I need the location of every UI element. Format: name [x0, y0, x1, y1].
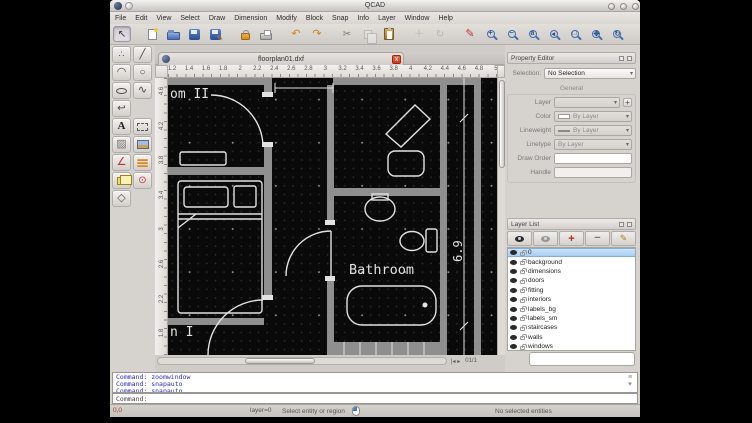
move-button: ＋	[410, 26, 428, 42]
select-pointer-icon: ↖	[118, 29, 126, 40]
snap-tool-button[interactable]: ⊙	[133, 172, 152, 189]
circle-tool-button[interactable]: ○	[133, 64, 152, 81]
command-history-line: Command: snapauto	[116, 381, 623, 388]
move-icon: ＋	[414, 29, 424, 40]
close-panel-icon[interactable]	[627, 222, 632, 227]
command-history[interactable]: Command: zoomwindowCommand: snapautoComm…	[112, 372, 638, 393]
coordinate-display: 0,0	[113, 407, 122, 414]
zoom-auto-icon: a	[529, 30, 537, 38]
menu-file[interactable]: File	[115, 15, 126, 22]
menu-snap[interactable]: Snap	[332, 15, 348, 22]
layer-filter-input[interactable]	[529, 352, 635, 366]
menu-edit[interactable]: Edit	[135, 15, 147, 22]
layer-visible-eye-icon[interactable]	[510, 278, 517, 283]
ellipse-tool-button[interactable]	[112, 82, 131, 99]
zoom-window-button[interactable]: □	[566, 26, 584, 42]
vruler-tick-label: 1.8	[159, 327, 165, 339]
zoom-pan-button[interactable]: ✥	[587, 26, 605, 42]
hruler-tick-label: 4.4	[441, 66, 449, 72]
block-tool-icon	[117, 177, 127, 185]
layer-name: staircases	[528, 324, 557, 331]
polyline-tool-icon: ↩	[117, 103, 125, 114]
color-combobox[interactable]: By Layer	[554, 111, 632, 122]
line-tool-icon: ╱	[139, 49, 145, 60]
solid-tool-button[interactable]: ◇	[112, 190, 131, 207]
print-icon	[260, 33, 272, 40]
add-layer-button[interactable]: +	[559, 231, 584, 246]
print-button[interactable]	[257, 26, 275, 42]
layer-name: walls	[528, 334, 542, 341]
draw-order-input[interactable]	[554, 153, 632, 164]
hide-all-layers-icon	[541, 236, 550, 242]
right-dock: Property Editor Selection: No Selection …	[505, 45, 638, 372]
zoom-refresh-button[interactable]: ↻	[608, 26, 626, 42]
layer-name: 0	[528, 249, 532, 256]
handle-label: Handle	[511, 169, 551, 176]
vruler-tick-label: 3	[159, 223, 165, 235]
float-panel-icon[interactable]	[619, 56, 624, 61]
layer-visible-eye-icon[interactable]	[510, 250, 517, 255]
add-layer-icon[interactable]: +	[623, 98, 632, 107]
copy-icon	[364, 30, 372, 39]
layer-visible-eye-icon[interactable]	[510, 307, 517, 312]
redo-button[interactable]: ↷	[308, 26, 326, 42]
general-group-title: General	[507, 85, 636, 92]
lounge-chair-back	[386, 105, 430, 147]
dimension-aligned-tool-button[interactable]: ∠	[112, 154, 131, 171]
dimension-line-top	[275, 83, 333, 93]
hscroll-thumb[interactable]	[245, 358, 315, 364]
ellipse-tool-icon	[116, 88, 127, 94]
floorplan-drawing: om II n I Bathroom 6.9	[168, 78, 497, 355]
zoom-in-icon: +	[487, 30, 495, 38]
layer-lock-icon[interactable]	[520, 299, 525, 303]
paste-icon	[384, 28, 394, 40]
bathroom-label: Bathroom	[349, 262, 414, 278]
vertical-scrollbar[interactable]	[497, 78, 505, 355]
status-bar: 0,0 layer=0 Select entity or region No s…	[110, 404, 640, 417]
circle-tool-icon: ○	[139, 67, 145, 78]
shelf-room2	[180, 152, 226, 165]
menu-window[interactable]: Window	[405, 15, 430, 22]
layer-visible-eye-icon[interactable]	[510, 344, 517, 349]
bed-blanket-lines	[178, 214, 262, 228]
layer-lock-icon[interactable]	[520, 270, 525, 274]
document-tab-bar: floorplan01.dxf x	[155, 52, 505, 65]
show-all-layers-icon	[515, 236, 524, 242]
hruler-tick-label: 2.8	[304, 66, 312, 72]
remove-layer-button[interactable]: −	[585, 231, 610, 246]
ruler-end-cap	[497, 65, 505, 78]
paste-button[interactable]	[380, 26, 398, 42]
layer-name: labels_sm	[528, 315, 557, 322]
vruler-tick-label: 4.6	[159, 85, 165, 97]
door-arc-room1	[208, 300, 263, 355]
selection-combobox[interactable]: No Selection	[544, 68, 636, 79]
wall-end-caps	[262, 92, 335, 300]
qcad-window: QCAD FileEditViewSelectDrawDimensionModi…	[110, 0, 640, 417]
image-tool-button[interactable]	[133, 136, 152, 153]
zoom-prev-icon: ◂	[550, 30, 558, 38]
mouse-hint-text: Select entity or region	[282, 408, 345, 415]
layer-visible-eye-icon[interactable]	[510, 316, 517, 321]
property-editor-panel: Property Editor Selection: No Selection …	[507, 52, 636, 212]
lineweight-label: Lineweight	[511, 127, 551, 134]
layer-name: windows	[528, 343, 553, 350]
copy-button	[359, 26, 377, 42]
floorplan-canvas[interactable]: om II n I Bathroom 6.9	[168, 78, 497, 355]
hruler-tick-label: 1.8	[219, 66, 227, 72]
solid-tool-icon: ◇	[117, 193, 125, 204]
room1-label: n I	[170, 325, 193, 340]
vruler-tick-label: 3.8	[159, 154, 165, 166]
polyline-tool-button[interactable]: ↩	[112, 100, 131, 117]
layer-row-labels_sm[interactable]: labels_sm	[508, 314, 635, 323]
layer-lock-icon[interactable]	[520, 308, 525, 312]
layer-visible-eye-icon[interactable]	[510, 335, 517, 340]
color-label: Color	[511, 113, 551, 120]
hruler-tick-label: 2.4	[270, 66, 278, 72]
mouse-icon	[352, 406, 360, 416]
linetype-label: Linetype	[511, 141, 551, 148]
close-panel-icon[interactable]	[627, 56, 632, 61]
room2-label: om II	[170, 87, 209, 102]
tab-close-icon[interactable]: x	[392, 55, 401, 64]
menu-modify[interactable]: Modify	[276, 15, 297, 22]
snap-tool-icon: ⊙	[138, 175, 146, 186]
layer-row-fitting[interactable]: fitting	[508, 286, 635, 295]
dimension-text: 6.9	[451, 240, 465, 262]
text-tool-button[interactable]: A	[112, 118, 131, 135]
command-prompt-input[interactable]: Command:	[112, 393, 638, 404]
door-arc-bathroom	[286, 231, 331, 276]
spline-tool-button[interactable]: ∿	[133, 82, 152, 99]
layer-row-doors[interactable]: doors	[508, 276, 635, 285]
command-history-line: Command: zoomwindow	[116, 374, 623, 381]
menu-info[interactable]: Info	[357, 15, 369, 22]
layer-name: fitting	[528, 287, 544, 294]
vruler-tick-label: 3.4	[159, 189, 165, 201]
tab-nav-prev-icon[interactable]: |◂ ▸	[451, 358, 460, 365]
cut-icon: ✂	[343, 29, 351, 40]
layer-visible-eye-icon[interactable]	[510, 269, 517, 274]
layer-name: interiors	[528, 296, 551, 303]
lineweight-sample	[558, 130, 570, 132]
lounge-seat	[388, 151, 424, 176]
hruler-tick-label: 3	[324, 66, 327, 72]
zoom-window-icon: □	[571, 30, 579, 38]
hruler-tick-label: 3.2	[338, 66, 346, 72]
horizontal-scrollbar[interactable]: |◂ ▸ 01/1	[155, 355, 505, 367]
save-button[interactable]	[185, 26, 203, 42]
float-panel-icon[interactable]	[619, 222, 624, 227]
save-as-icon	[210, 29, 221, 40]
hruler-tick-label: 1.6	[202, 66, 210, 72]
vruler-tick-label: 4.2	[159, 120, 165, 132]
layer-list: 0backgrounddimensionsdoorsfittinginterio…	[507, 247, 636, 351]
new-file-icon	[148, 29, 157, 40]
hruler-tick-label: 4.8	[475, 66, 483, 72]
document-tab[interactable]: floorplan01.dxf x	[158, 52, 404, 65]
document-tab-title: floorplan01.dxf	[170, 56, 392, 63]
hatch-tool-button[interactable]: ▨	[112, 136, 131, 153]
menu-help[interactable]: Help	[439, 15, 453, 22]
linetype-combobox[interactable]: By Layer	[554, 139, 632, 150]
document-icon	[162, 55, 170, 63]
layer-state-display: layer=0	[250, 407, 272, 414]
layer-visible-eye-icon[interactable]	[510, 297, 517, 302]
layer-name: background	[528, 259, 562, 266]
zoom-prev-button[interactable]: ◂	[545, 26, 563, 42]
edit-layer-button[interactable]: ✎	[611, 231, 636, 246]
draw-order-tool-icon	[137, 159, 148, 167]
zoom-out-button[interactable]: −	[503, 26, 521, 42]
arc-tool-button[interactable]: ◠	[112, 64, 131, 81]
layer-row-dimensions[interactable]: dimensions	[508, 267, 635, 276]
horizontal-ruler: 1.21.41.61.822.22.42.62.833.23.43.63.844…	[168, 65, 497, 78]
menu-draw[interactable]: Draw	[209, 15, 225, 22]
layer-toolbar: +−✎	[507, 231, 636, 246]
command-options-icon[interactable]: ≡▾	[625, 374, 635, 388]
secure-lock-button[interactable]	[236, 26, 254, 42]
undo-button[interactable]: ↶	[287, 26, 305, 42]
dimension-line-right	[460, 78, 468, 355]
new-file-button[interactable]	[143, 26, 161, 42]
save-icon	[189, 29, 200, 40]
layer-row-windows[interactable]: windows	[508, 342, 635, 351]
vertical-ruler: 4.64.23.83.432.62.21.8	[155, 78, 168, 355]
draw-order-tool-button[interactable]	[133, 154, 152, 171]
redo-icon: ↷	[312, 29, 321, 40]
open-file-icon	[167, 32, 180, 40]
layer-lock-icon[interactable]	[520, 346, 525, 350]
layer-lock-icon[interactable]	[520, 280, 525, 284]
rotate-icon: ↻	[436, 29, 444, 40]
zoom-auto-button[interactable]: a	[524, 26, 542, 42]
layer-row-labels_bg[interactable]: labels_bg	[508, 304, 635, 313]
layer-label: Layer	[511, 99, 551, 106]
hruler-tick-label: 2	[239, 66, 242, 72]
vruler-tick-label: 2.6	[159, 258, 165, 270]
line-tool-button[interactable]: ╱	[133, 46, 152, 63]
menu-select[interactable]: Select	[180, 15, 199, 22]
point-tool-icon: ∴	[119, 49, 125, 60]
hruler-tick-label: 2.2	[253, 66, 261, 72]
pen-edit-button[interactable]: ✎	[461, 26, 479, 42]
ruler-corner	[155, 65, 168, 78]
secure-lock-icon	[241, 33, 250, 40]
layer-name: labels_bg	[528, 306, 556, 313]
vruler-tick-label: 2.2	[159, 293, 165, 305]
handle-input	[554, 167, 632, 178]
layer-visible-eye-icon[interactable]	[510, 288, 517, 293]
selection-info: No selected entities	[495, 408, 552, 415]
window-title: QCAD	[110, 2, 640, 9]
tab-page-indicator: 01/1	[465, 358, 477, 364]
layer-lock-icon[interactable]	[520, 261, 525, 265]
hruler-tick-label: 3.6	[372, 66, 380, 72]
layer-lock-icon[interactable]	[520, 327, 525, 331]
hruler-tick-label: 4	[409, 66, 412, 72]
zoom-pan-icon: ✥	[592, 30, 600, 38]
layer-lock-icon[interactable]	[520, 317, 525, 321]
block-tool-button[interactable]	[112, 172, 131, 189]
save-as-button[interactable]	[206, 26, 224, 42]
text-tool-icon: A	[118, 121, 126, 132]
lineweight-combobox[interactable]: By Layer	[554, 125, 632, 136]
arc-tool-icon: ◠	[117, 67, 127, 78]
minimize-button[interactable]	[608, 3, 615, 10]
hruler-tick-label: 3.8	[389, 66, 397, 72]
title-bar[interactable]: QCAD	[110, 0, 640, 12]
image-tool-icon	[137, 140, 149, 149]
spline-tool-icon: ∿	[138, 85, 147, 96]
menu-layer[interactable]: Layer	[378, 15, 396, 22]
letterbox-bar	[0, 417, 752, 423]
bathtub-drain	[423, 303, 428, 308]
dimension-tool-button[interactable]	[133, 118, 152, 135]
hruler-tick-label: 4.6	[458, 66, 466, 72]
selection-label: Selection:	[507, 70, 541, 77]
layer-combobox[interactable]	[554, 97, 620, 108]
menu-bar: FileEditViewSelectDrawDimensionModifyBlo…	[110, 12, 640, 24]
layer-lock-icon[interactable]	[520, 252, 525, 256]
color-swatch	[558, 114, 570, 119]
remove-layer-icon: −	[594, 234, 600, 243]
layer-lock-icon[interactable]	[520, 336, 525, 340]
layer-lock-icon[interactable]	[520, 289, 525, 293]
cut-button[interactable]: ✂	[338, 26, 356, 42]
zoom-out-icon: −	[508, 30, 516, 38]
door-arc-room2	[211, 95, 263, 147]
pen-edit-icon: ✎	[465, 29, 474, 40]
hruler-tick-label: 1.4	[185, 66, 193, 72]
layer-visible-eye-icon[interactable]	[510, 325, 517, 330]
menu-dimension[interactable]: Dimension	[234, 15, 267, 22]
mdi-area: floorplan01.dxf x 1.21.41.61.822.22.42.6…	[155, 45, 505, 372]
undo-icon: ↶	[291, 29, 300, 40]
close-button[interactable]	[632, 3, 639, 10]
menu-block[interactable]: Block	[306, 15, 323, 22]
layer-name: dimensions	[528, 268, 561, 275]
show-all-layers-button[interactable]	[507, 231, 532, 246]
layer-name: doors	[528, 277, 544, 284]
layer-row-staircases[interactable]: staircases	[508, 323, 635, 332]
zoom-in-button[interactable]: +	[482, 26, 500, 42]
hruler-tick-label: 3.4	[355, 66, 363, 72]
point-tool-button[interactable]: ∴	[112, 46, 131, 63]
add-layer-icon: +	[568, 234, 574, 244]
nightstand	[234, 186, 256, 207]
hruler-tick-label: 2.6	[287, 66, 295, 72]
rotate-button: ↻	[431, 26, 449, 42]
dimension-tool-icon	[137, 123, 148, 131]
hatch-tool-icon: ▨	[116, 139, 126, 150]
hruler-tick-label: 1.2	[168, 66, 176, 72]
toilet-bowl	[400, 232, 424, 251]
layer-list-panel: Layer List +−✎ 0backgrounddimensionsdoor…	[507, 218, 636, 370]
layer-row-background[interactable]: background	[508, 257, 635, 266]
hruler-tick-label: 4.2	[424, 66, 432, 72]
layer-row-0[interactable]: 0	[508, 248, 635, 257]
main-toolbar: ↖↶↷✂＋↻✎+−a◂□✥↻	[110, 24, 640, 45]
select-pointer-button[interactable]: ↖	[113, 26, 131, 42]
dimension-aligned-tool-icon: ∠	[117, 157, 127, 168]
hide-all-layers-button[interactable]	[533, 231, 558, 246]
toilet-tank	[426, 229, 437, 252]
layer-row-interiors[interactable]: interiors	[508, 295, 635, 304]
cad-tool-palette: ∴╱◠○∿↩A▨∠⊙◇	[110, 45, 155, 372]
layer-list-title: Layer List	[511, 221, 616, 228]
zoom-refresh-icon: ↻	[613, 30, 621, 38]
bed-pillow	[184, 187, 228, 207]
edit-layer-icon: ✎	[620, 233, 628, 244]
layer-visible-eye-icon[interactable]	[510, 260, 517, 265]
maximize-button[interactable]	[620, 3, 627, 10]
draw-order-label: Draw Order	[511, 155, 551, 162]
open-file-button[interactable]	[164, 26, 182, 42]
bed	[178, 181, 262, 313]
layer-row-walls[interactable]: walls	[508, 333, 635, 342]
property-editor-title: Property Editor	[511, 55, 616, 62]
menu-view[interactable]: View	[156, 15, 171, 22]
